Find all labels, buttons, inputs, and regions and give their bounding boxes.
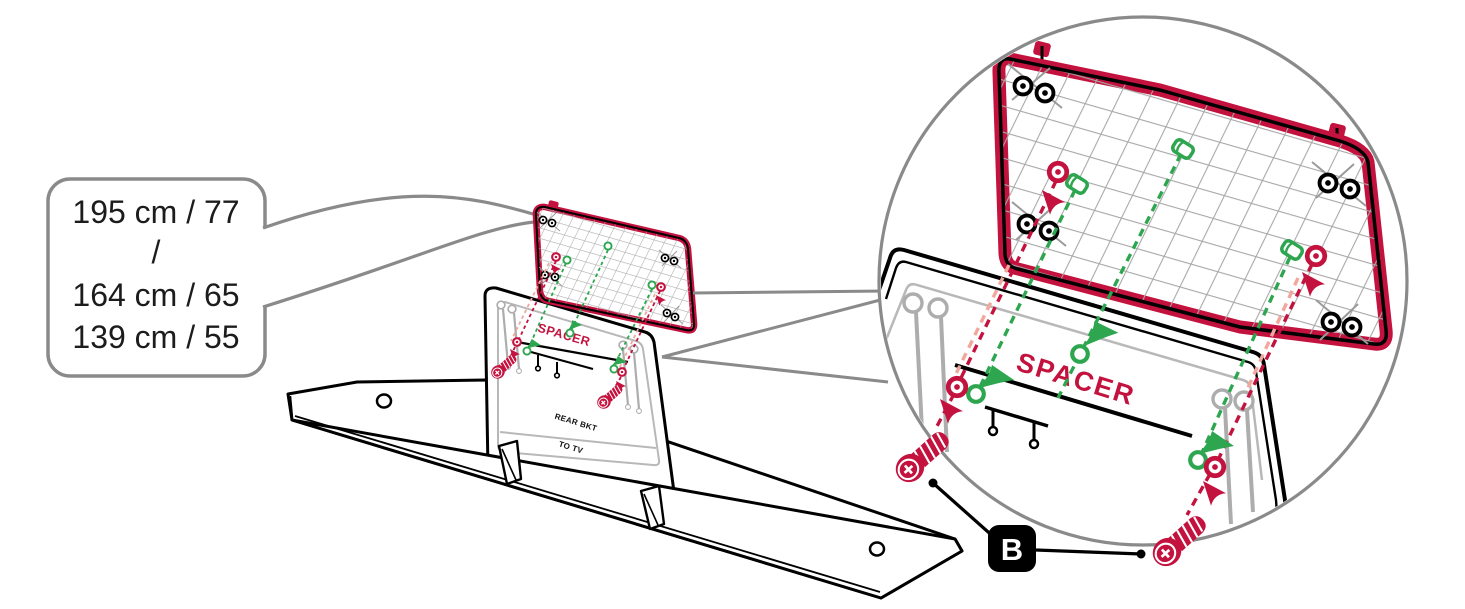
screw-hole-icon xyxy=(539,216,546,223)
stand-hole-left xyxy=(377,395,391,408)
magnifier-pointer xyxy=(662,291,888,382)
screw-hole-icon xyxy=(661,254,668,261)
screw-hole-icon xyxy=(670,257,677,264)
pin-icon xyxy=(637,409,642,414)
screw-hole-icon xyxy=(1037,85,1054,102)
size-line-4: 139 cm / 55 xyxy=(72,319,239,355)
spacer-ring-icon xyxy=(1190,452,1206,468)
screw-target-ring-icon xyxy=(618,368,626,376)
screw-hole-icon xyxy=(663,309,670,316)
screw-target-ring-icon xyxy=(1307,247,1325,265)
illustration-page: 195 cm / 77 / 164 cm / 65 139 cm / 55 xyxy=(0,0,1465,609)
pointer-lower-line xyxy=(662,357,888,382)
screw-hole-icon xyxy=(1320,175,1337,192)
size-line-1: 195 cm / 77 xyxy=(72,194,239,230)
pin-icon xyxy=(497,301,505,309)
spacer-ring-icon xyxy=(604,242,611,249)
pin-icon xyxy=(929,299,947,317)
size-line-2: / xyxy=(152,234,161,270)
screw-hole-icon xyxy=(1344,319,1361,336)
screw-hole-icon xyxy=(1015,78,1032,95)
pin-icon xyxy=(1213,390,1231,408)
screw-target-ring-icon xyxy=(552,253,560,261)
leader-dot xyxy=(929,479,938,488)
stand-hole-right xyxy=(870,543,884,556)
pin-icon xyxy=(626,405,631,410)
screw-target-ring-icon xyxy=(948,378,966,396)
screw-hole-icon xyxy=(1342,181,1359,198)
screw-hole-icon xyxy=(671,313,678,320)
screw-target-ring-icon xyxy=(1206,458,1224,476)
assembly-diagram: 195 cm / 77 / 164 cm / 65 139 cm / 55 xyxy=(0,0,1465,609)
screw-hole-icon xyxy=(548,219,555,226)
pin-icon xyxy=(517,369,522,374)
screw-hole-icon xyxy=(1323,314,1340,331)
screw-hole-icon xyxy=(551,273,558,280)
screw-target-ring-icon xyxy=(513,338,521,346)
spacer-ring-icon xyxy=(523,347,530,354)
pin-icon xyxy=(904,294,922,312)
part-label-text: B xyxy=(1001,532,1023,567)
screw-hole-icon xyxy=(1019,216,1036,233)
callout-bubble: 195 cm / 77 / 164 cm / 65 139 cm / 55 xyxy=(48,179,534,376)
screw-target-ring-icon xyxy=(1049,163,1067,181)
screw-target-ring-icon xyxy=(657,283,665,291)
spacer-ring-icon xyxy=(610,365,617,372)
spacer-ring-icon xyxy=(1072,346,1088,362)
spacer-ring-icon xyxy=(968,386,984,402)
pointer-top-line xyxy=(693,291,886,293)
spacer-ring-icon xyxy=(566,329,573,336)
spacer-ring-icon xyxy=(563,256,570,263)
spacer-ring-icon xyxy=(648,281,655,288)
pin-icon xyxy=(508,305,516,313)
leader-dot xyxy=(1137,550,1146,559)
size-line-3: 164 cm / 65 xyxy=(72,277,239,313)
